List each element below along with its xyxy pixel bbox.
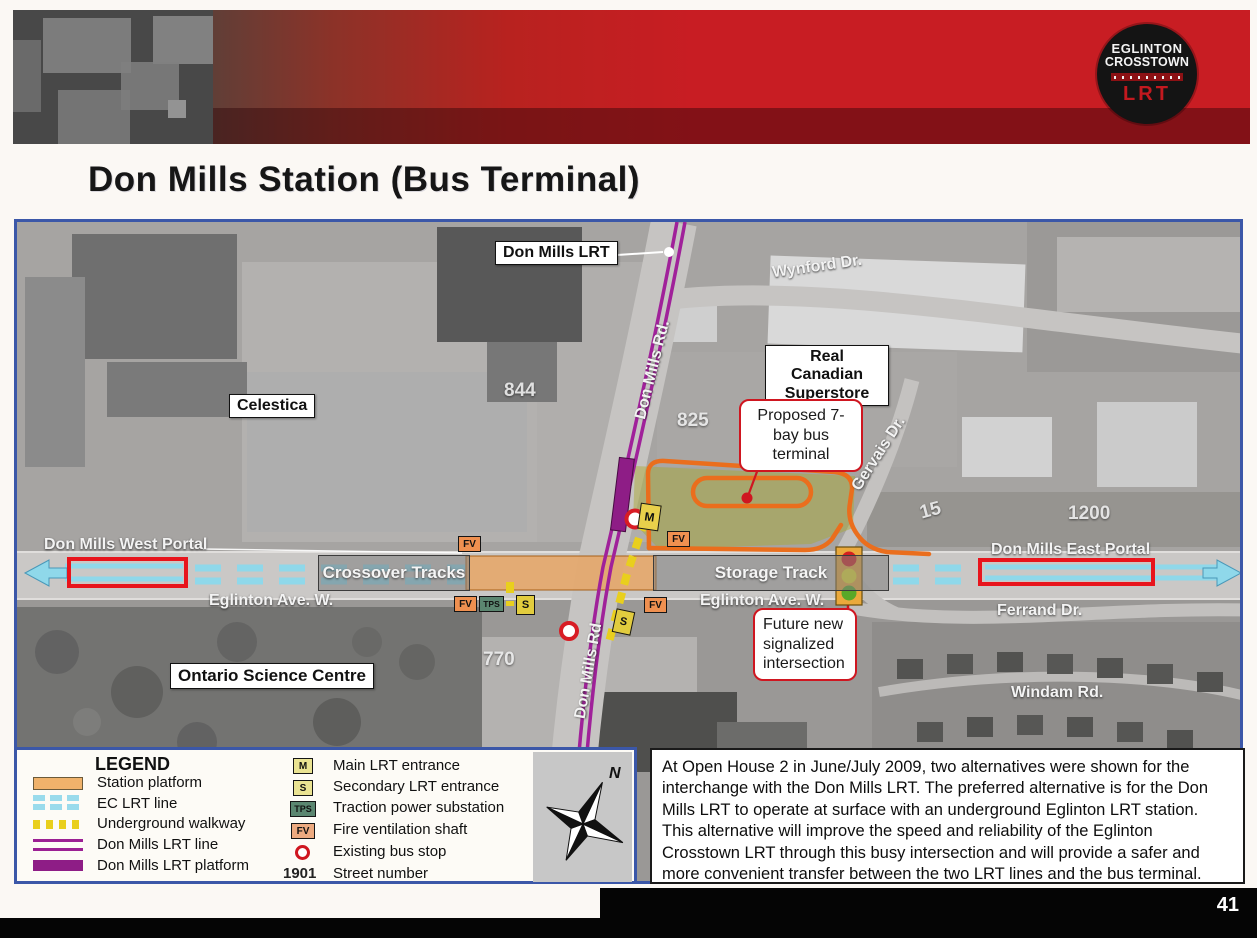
footer-bar [0, 918, 1257, 938]
main-entrance-marker: M [637, 503, 661, 532]
fv-marker: FV [667, 531, 690, 547]
banner-left-graphic [13, 10, 213, 144]
decorative-square [153, 16, 213, 64]
lrt-leader-dot [664, 247, 674, 257]
swatch-ec-lrt-line [33, 795, 83, 810]
decorative-square [58, 90, 130, 144]
secondary-entrance-marker: S [516, 595, 535, 615]
celestica-label: Celestica [229, 394, 315, 418]
street-number-825: 825 [677, 410, 709, 432]
bus-terminal-callout: Proposed 7-bay bus terminal [739, 399, 863, 472]
legend-label: EC LRT line [97, 795, 177, 812]
science-centre-label: Ontario Science Centre [170, 663, 374, 689]
banner-dark-band [213, 108, 1250, 144]
logo-text-crosstown: CROSSTOWN [1105, 56, 1189, 70]
fv-marker: FV [644, 597, 667, 613]
legend-box: LEGEND Station platform EC LRT line Unde… [14, 747, 637, 884]
compass-rose-icon: N [533, 752, 632, 882]
legend-label: Don Mills LRT platform [97, 857, 249, 874]
header-banner: EGLINTON CROSSTOWN LRT [13, 10, 1250, 144]
logo-text-eglinton: EGLINTON [1112, 42, 1183, 56]
decorative-square [168, 100, 186, 118]
eglinton-crosstown-logo: EGLINTON CROSSTOWN LRT [1097, 24, 1197, 124]
page-number: 41 [1217, 894, 1239, 917]
crossover-tracks-label: Crossover Tracks [318, 555, 470, 591]
legend-label: Underground walkway [97, 815, 245, 832]
legend-tps-marker: TPS [290, 801, 316, 817]
legend-label: Main LRT entrance [333, 757, 460, 774]
bus-stop-icon [561, 623, 577, 639]
street-windam: Windam Rd. [1011, 684, 1103, 702]
tps-marker: TPS [479, 596, 504, 612]
fv-marker: FV [458, 536, 481, 552]
legend-label: Traction power substation [333, 799, 504, 816]
west-portal-label: Don Mills West Portal [44, 536, 207, 554]
intersection-callout: Future new signalized intersection [753, 608, 857, 681]
swatch-station-platform [33, 777, 83, 790]
swatch-underground-walkway [33, 820, 83, 829]
street-number-1200: 1200 [1068, 503, 1110, 525]
compass-n-label: N [609, 765, 621, 782]
swatch-don-mills-line [33, 839, 83, 851]
legend-bus-stop-icon [295, 845, 310, 860]
decorative-square [13, 40, 41, 112]
legend-label: Fire ventilation shaft [333, 821, 467, 838]
street-number-844: 844 [504, 380, 536, 402]
legend-label: Don Mills LRT line [97, 836, 218, 853]
legend-label: Existing bus stop [333, 843, 446, 860]
storage-track-text: Storage Track [715, 563, 827, 583]
crossover-tracks-text: Crossover Tracks [323, 563, 466, 583]
don-mills-lrt-label: Don Mills LRT [495, 241, 618, 265]
fv-marker: FV [454, 596, 477, 612]
legend-1901: 1901 [283, 865, 316, 882]
legend-title: LEGEND [95, 754, 170, 775]
street-ferrand: Ferrand Dr. [997, 602, 1082, 620]
superstore-label: Real Canadian Superstore [765, 345, 889, 406]
compass-panel: N [533, 752, 632, 882]
legend-label: Station platform [97, 774, 202, 791]
page-title: Don Mills Station (Bus Terminal) [88, 160, 640, 200]
east-portal-label: Don Mills East Portal [991, 541, 1150, 559]
legend-s-marker: S [293, 780, 313, 796]
swatch-don-mills-platform [33, 860, 83, 871]
legend-fv-marker: FV [291, 823, 315, 839]
decorative-square [43, 18, 131, 73]
description-box: At Open House 2 in June/July 2009, two a… [650, 748, 1245, 884]
slide: EGLINTON CROSSTOWN LRT Don Mills Station… [0, 0, 1257, 938]
street-eglinton-west: Eglinton Ave. W. [209, 592, 333, 610]
street-number-770: 770 [483, 649, 515, 671]
terminal-leader-dot [742, 493, 753, 504]
legend-label: Street number [333, 865, 428, 882]
logo-stripe [1111, 73, 1183, 81]
legend-m-marker: M [293, 758, 313, 774]
logo-text-lrt: LRT [1123, 83, 1171, 106]
storage-track-label: Storage Track [653, 555, 889, 591]
legend-label: Secondary LRT entrance [333, 778, 499, 795]
